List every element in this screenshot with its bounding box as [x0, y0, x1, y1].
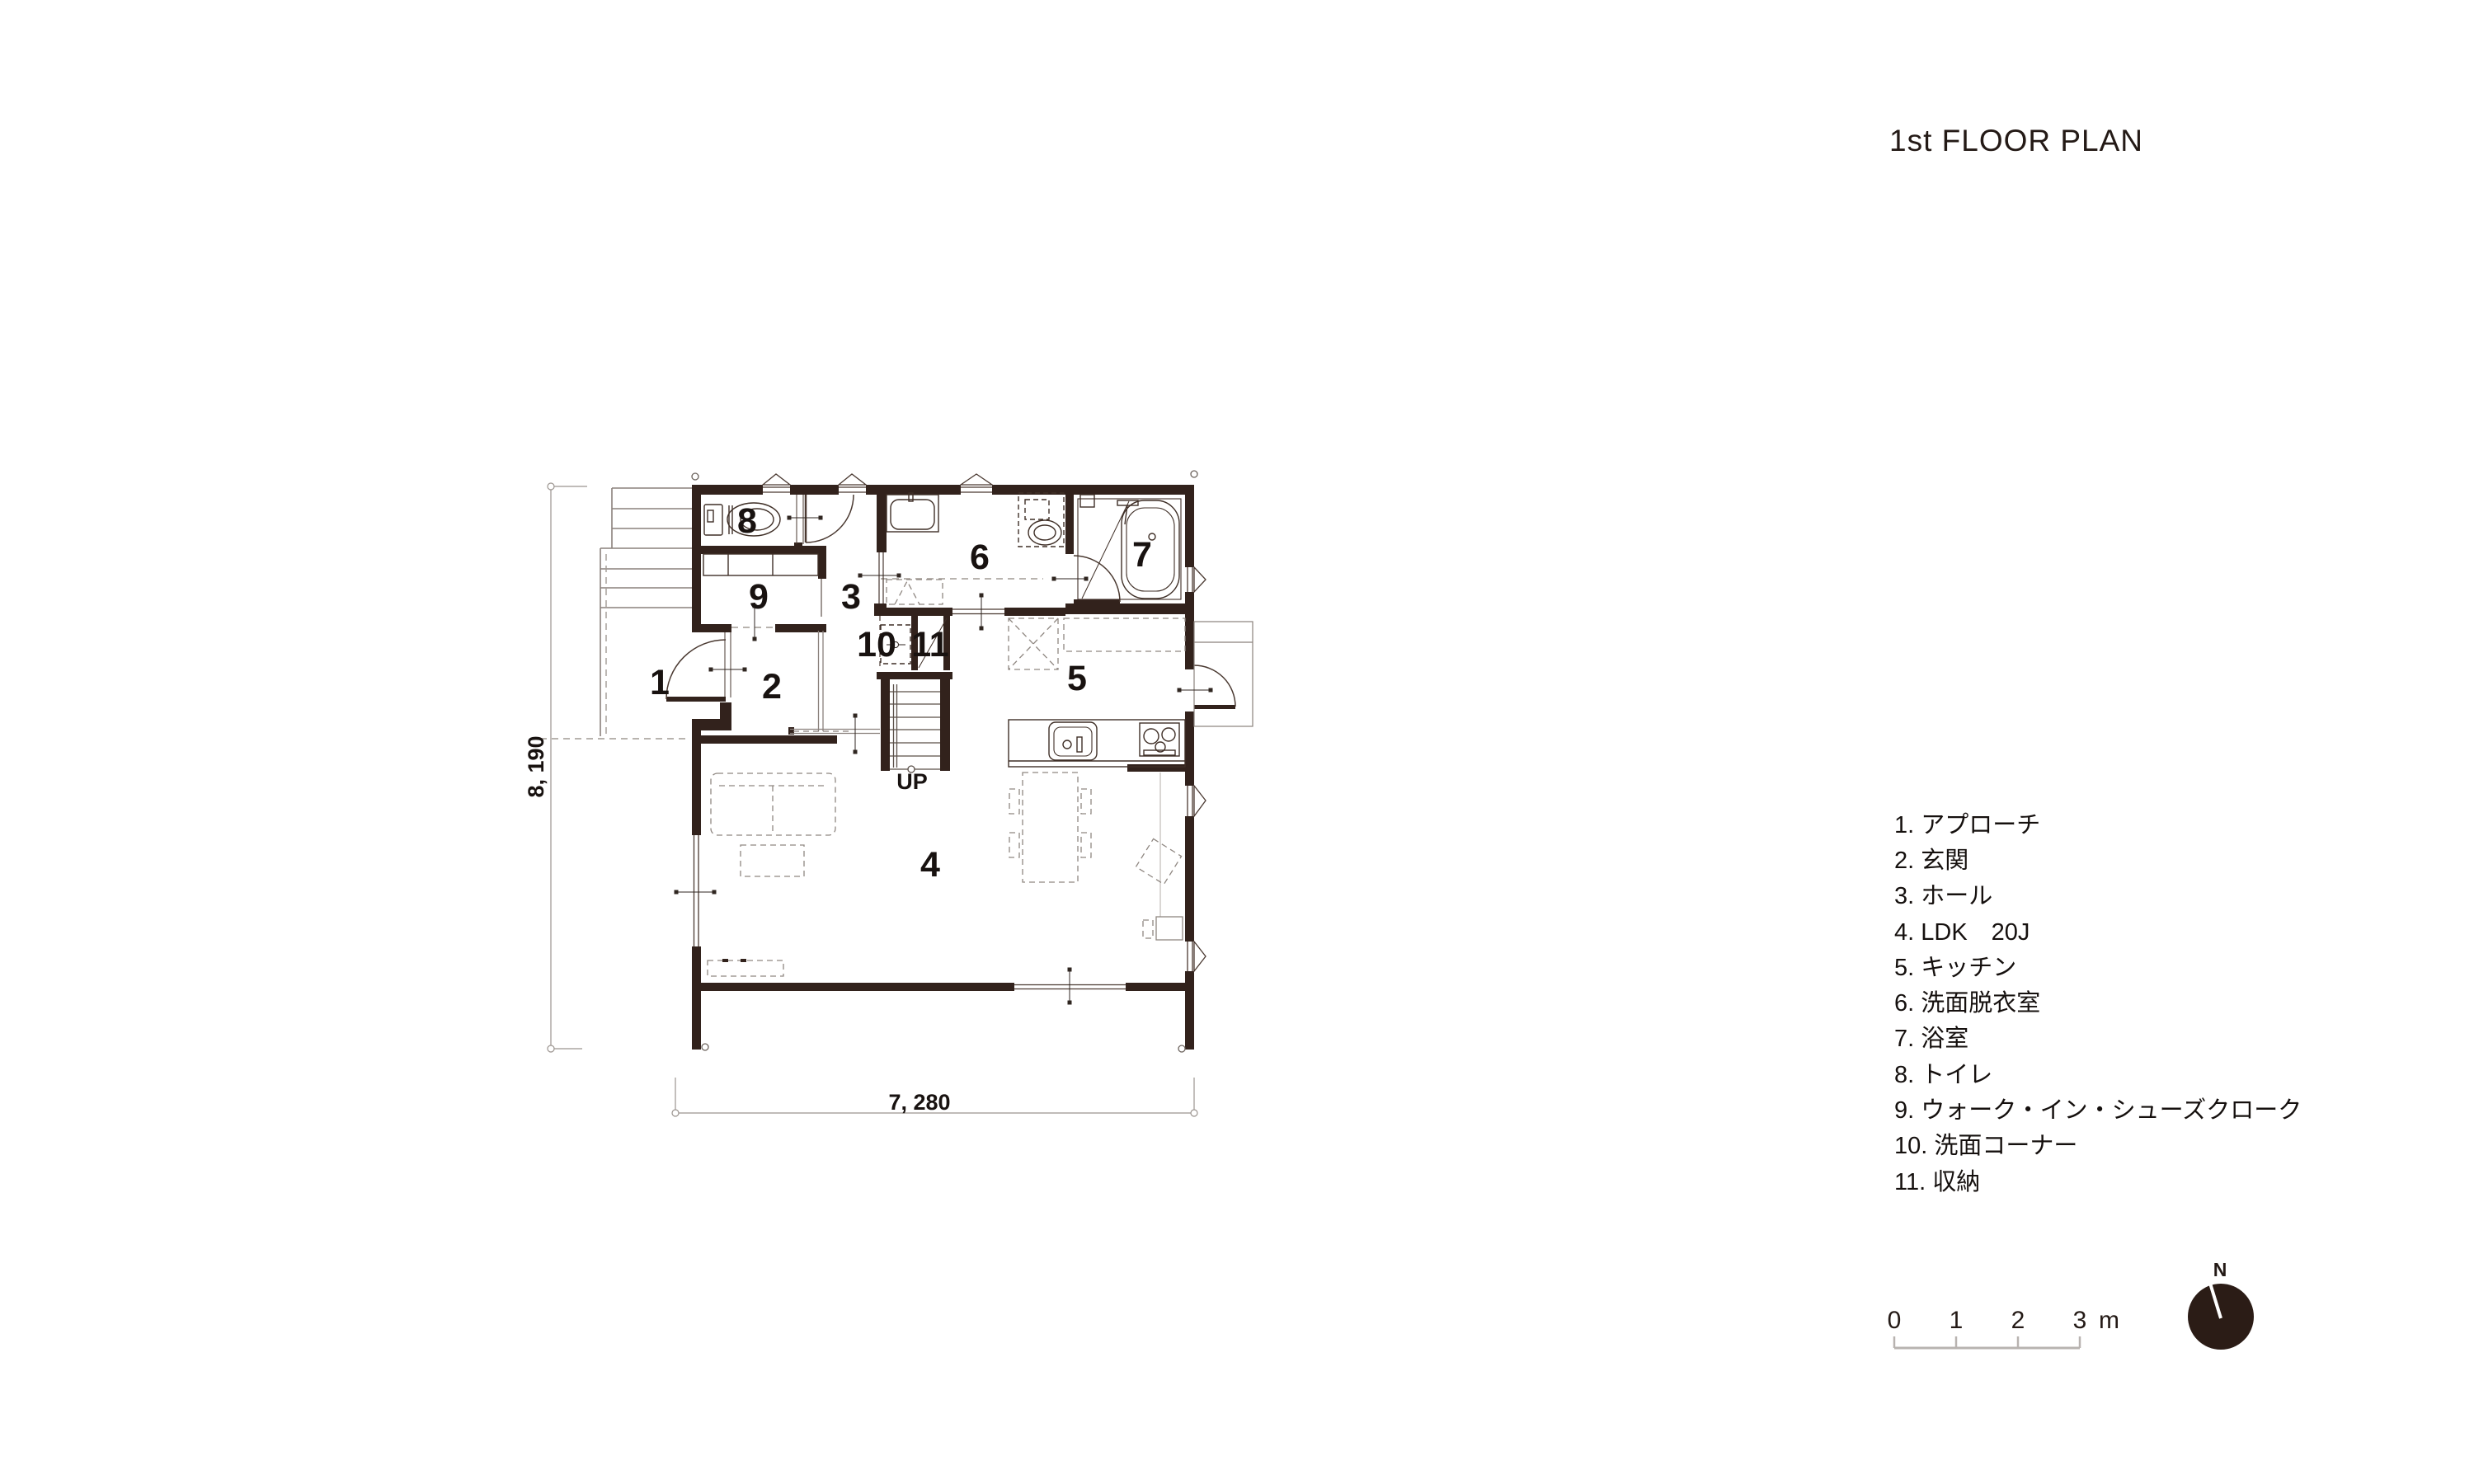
room-number-11: 11: [911, 625, 948, 665]
washing-machine-icon: [1018, 493, 1064, 547]
sliding-door-hall-ldk: [790, 631, 1160, 917]
room-number-8: 8: [737, 501, 757, 541]
kitchen-porch: [1194, 622, 1253, 726]
legend-item: 2. 玄関: [1894, 840, 2302, 876]
legend-item: 9. ウォーク・イン・シューズクローク: [1894, 1090, 2302, 1125]
north-compass: N: [2188, 1284, 2254, 1350]
legend-item: 6. 洗面脱衣室: [1894, 983, 2302, 1018]
scale-tick-2: 2: [2011, 1307, 2025, 1334]
legend-item: 7. 浴室: [1894, 1019, 2302, 1054]
room-number-2: 2: [762, 667, 782, 707]
desk: [1156, 917, 1183, 940]
chair: [1009, 789, 1019, 814]
room-number-9: 9: [749, 577, 769, 617]
scale-tick-0: 0: [1888, 1307, 1902, 1334]
room-number-3: 3: [841, 577, 861, 617]
legend-item: 1. アプローチ: [1894, 805, 2302, 840]
legend-item: 5. キッチン: [1894, 947, 2302, 983]
desk-chair: [1143, 920, 1153, 938]
stairs: [890, 684, 940, 773]
floor-plan-drawing: 8, 190 7, 280 1 2 3 4 5 6 7 8 9 10 11 UP: [495, 445, 1319, 1171]
legend-item: 4. LDK 20J: [1894, 912, 2302, 947]
room-legend: 1. アプローチ 2. 玄関 3. ホール 4. LDK 20J 5. キッチン…: [1894, 805, 2302, 1197]
lounge-chair: [1136, 838, 1181, 884]
legend-item: 10. 洗面コーナー: [1894, 1126, 2302, 1162]
refrigerator: [1009, 618, 1058, 669]
legend-item: 3. ホール: [1894, 876, 2302, 912]
chair: [1081, 789, 1091, 814]
room-number-6: 6: [970, 538, 990, 577]
dimension-width: 7, 280: [888, 1090, 950, 1115]
floor-plan-page: 1st FLOOR PLAN: [0, 0, 2474, 1484]
eave-dashed-lines: [540, 554, 1043, 739]
cupboard: [1064, 618, 1185, 651]
legend-item: 8. トイレ: [1894, 1054, 2302, 1090]
room-number-7: 7: [1132, 535, 1152, 575]
upper-cabinet: [887, 580, 943, 604]
vanity-sink-icon: [887, 493, 938, 532]
page-title: 1st FLOOR PLAN: [1889, 124, 2143, 158]
dimension-height: 8, 190: [524, 735, 548, 797]
chair: [1081, 833, 1091, 857]
dining-table: [1023, 773, 1078, 882]
scale-tick-3: 3: [2073, 1307, 2087, 1334]
scale-tick-1: 1: [1950, 1307, 1964, 1334]
coffee-table: [741, 845, 804, 876]
up-label: UP: [896, 769, 928, 794]
north-label: N: [2199, 1259, 2241, 1281]
room-number-1: 1: [650, 663, 670, 702]
bathroom-fixtures: [1078, 495, 1181, 599]
scale-bar: 0 1 2 3 m: [1883, 1301, 2147, 1371]
room-number-5: 5: [1067, 659, 1087, 698]
kitchen-island: [1009, 720, 1185, 767]
scale-unit: m: [2099, 1307, 2119, 1334]
tv-board: [708, 960, 783, 976]
room-number-4: 4: [920, 845, 940, 885]
room-number-10: 10: [857, 625, 896, 665]
legend-item: 11. 収納: [1894, 1162, 2302, 1197]
dimension-lines: [548, 483, 1197, 1116]
chair: [1009, 833, 1019, 857]
